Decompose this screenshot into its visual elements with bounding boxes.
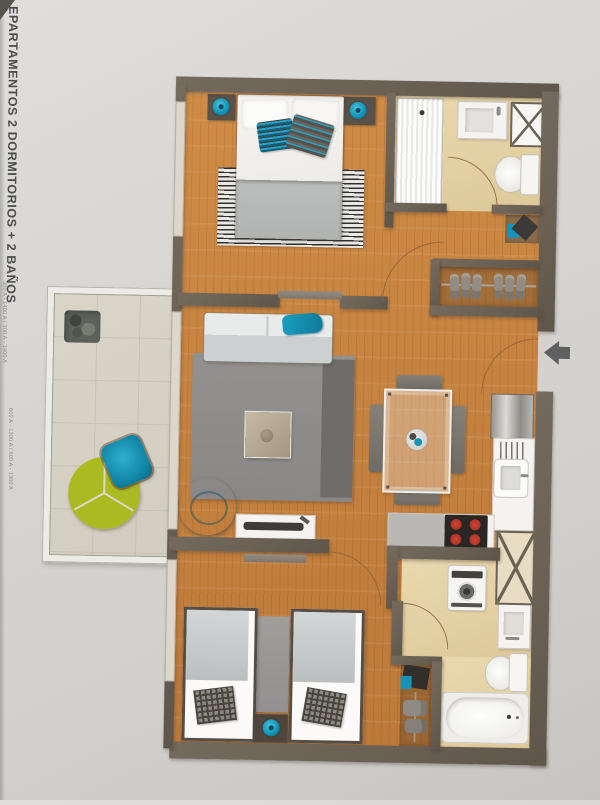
- wall-laundry-left: [386, 546, 398, 609]
- tv-console: [235, 514, 315, 541]
- burner: [470, 519, 481, 530]
- bedroom2-rug: [252, 616, 290, 713]
- shoes: [450, 274, 460, 299]
- bathroom1-shower: [395, 98, 444, 206]
- shoes: [505, 275, 514, 300]
- coffee-table: [245, 412, 291, 458]
- faucet: [505, 637, 519, 640]
- entrance-arrow-tail: [558, 347, 570, 359]
- bathroom1-sink: [457, 101, 508, 140]
- dining-chair-left: [369, 404, 384, 472]
- entrance-arrow-icon: [544, 341, 559, 365]
- bed-blanket: [235, 180, 342, 240]
- balcony-plant: [64, 310, 101, 343]
- bedroom1-sliding-door: [278, 290, 342, 299]
- bedroom2-wardrobe: [399, 664, 432, 747]
- duct-shaft-2: [495, 531, 536, 606]
- faucet: [521, 474, 529, 477]
- shoes: [461, 273, 470, 298]
- cooktop: [444, 515, 488, 549]
- faucet: [496, 107, 500, 116]
- bathroom2-sink: [497, 604, 531, 650]
- burner: [450, 534, 461, 545]
- plan-code-2: 600 A - 1300 A / 600 A - 1300 A: [7, 408, 13, 490]
- fridge: [491, 395, 533, 439]
- washing-machine: [448, 566, 486, 611]
- floorplan: [0, 0, 600, 805]
- bedroom2-sliding-door: [244, 554, 306, 563]
- shower-drain: [419, 110, 424, 115]
- bedroom1-bed: [235, 95, 344, 240]
- bedroom2-bed-left: [181, 607, 258, 742]
- checkered-pillow: [193, 686, 237, 725]
- wall-kitchen-laundry: [387, 546, 500, 561]
- bathroom2-toilet-tank: [509, 654, 527, 691]
- dining-table: [382, 388, 452, 493]
- shoes: [494, 273, 504, 298]
- burner: [469, 534, 480, 545]
- tub-drain: [507, 715, 511, 719]
- wall-closet-bottom: [430, 305, 542, 317]
- wall-bedroom1-bottom-left: [178, 292, 280, 307]
- bathroom1-toilet-tank: [521, 155, 539, 194]
- bedroom2-bed-right: [288, 609, 365, 744]
- tv: [243, 522, 303, 531]
- wall-wardrobe-right: [430, 661, 442, 749]
- bathtub: [440, 692, 529, 745]
- wall-bedroom1-bottom-right: [340, 296, 388, 310]
- table-centerpiece: [406, 429, 427, 450]
- wardrobe-item-teal: [400, 676, 411, 689]
- hall-bench: [505, 215, 540, 244]
- photo-edge-shadow: [0, 0, 5, 800]
- wall-bathroom1-bottom: [385, 202, 447, 212]
- wall-bedroom2-divider: [391, 601, 403, 663]
- checkered-pillow: [301, 687, 346, 727]
- kitchen-sink: [494, 460, 528, 498]
- plan-title: EPARTAMENTOS 2 DORMITORIOS + 2 BAÑOS: [4, 6, 21, 304]
- sofa-teal-throw: [282, 312, 324, 335]
- dish-rack: [500, 442, 526, 459]
- burner: [451, 519, 462, 530]
- dining-chair-right: [451, 406, 466, 474]
- plan-code-1: 300 A - 1400 A / 300 A - 1400 A: [1, 281, 7, 363]
- wall-bathroom1-bottom-right: [492, 204, 542, 214]
